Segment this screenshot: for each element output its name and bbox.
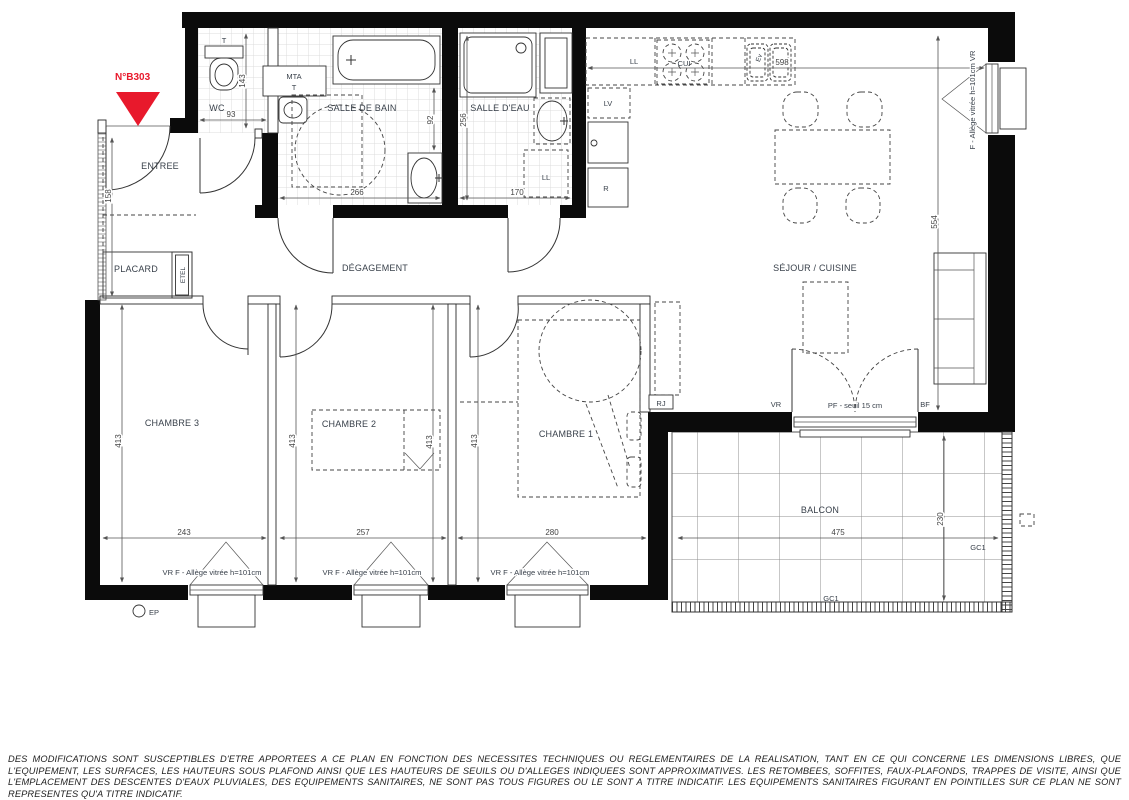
dim-sdb-w: 266 [350,188,364,197]
balcony-railing-bottom [672,602,1012,612]
label-mta-t: T [292,83,297,92]
entry-door [106,126,170,190]
room-label-ch3: CHAMBRE 3 [145,418,199,428]
sofa-icon [934,253,986,384]
turning-circle-ch1 [539,300,641,402]
label-gc1-bottom: GC1 [823,594,838,603]
wc-door [200,138,255,193]
kitchen-base-unit [588,122,628,163]
transfer-zone-lines [586,395,630,488]
french-door-pf [792,349,918,437]
label-washer-sde: LL [542,173,550,182]
dim-entree-h: 158 [104,189,113,203]
closet-outline [103,252,192,298]
label-window-sejour: F - Allège vitrée h=101cm VR [968,50,977,149]
dim-ch2-h-right: 413 [425,435,434,449]
label-washer-kitchen: LL [630,57,638,66]
unit-marker: N°B303 [115,72,160,126]
label-window-ch1: VR F - Allège vitrée h=101cm [491,568,590,577]
room-label-ch1: CHAMBRE 1 [539,429,593,439]
plan-number: N°B303 [115,72,151,83]
tv-unit-icon [655,302,680,395]
party-wall [98,133,106,300]
dim-sde-w: 170 [510,188,524,197]
label-dishwasher: LV [604,99,613,108]
room-label-degagement: DÉGAGEMENT [342,263,408,273]
dim-sdb-h: 92 [426,115,435,124]
chair-bracket-1 [627,412,641,440]
dining-table-icon [775,92,890,223]
label-ep: EP [149,608,159,617]
room-label-sdb: SALLE DE BAIN [327,103,396,113]
bathtub-icon [333,36,440,84]
base-unit-knob [591,140,597,146]
gutter-box [1020,514,1034,526]
ch1-door [470,304,518,357]
room-label-sejour: SÉJOUR / CUISINE [773,263,857,273]
room-label-balcon: BALCON [801,505,839,515]
window-sejour [942,64,1026,133]
window-ch1 [507,542,588,627]
label-window-ch2: VR F - Allège vitrée h=101cm [323,568,422,577]
label-gc1-right: GC1 [970,543,985,552]
balcony-floor [672,432,1002,602]
label-vr-sejour: VR [771,400,782,409]
coffee-table-icon [803,282,848,353]
room-label-ch2: CHAMBRE 2 [322,419,376,429]
entrance-arrow-icon [116,92,160,126]
shower-tray-icon [460,33,536,97]
label-bf: BF [920,400,930,409]
plan-disclaimer: DES MODIFICATIONS SONT SUSCEPTIBLES D'ET… [8,754,1121,800]
label-hob: CUI [678,59,691,68]
label-rj: RJ [656,399,665,408]
window-ch2 [354,542,428,627]
ch3-door [203,300,248,355]
dim-sejour-h: 554 [930,215,939,229]
bathroom-sink-icon [408,153,443,203]
dim-ch1-h: 413 [470,434,479,448]
balcony-railing-right [1002,432,1012,612]
room-label-wc: WC [209,103,225,113]
room-label-sde: SALLE D'EAU [470,103,529,113]
window-ch3 [190,542,263,627]
label-kitchen-sink: Ev [755,53,764,63]
chair-bracket-2 [627,457,641,487]
dim-ch2-w: 257 [356,528,370,537]
kitchen-counter [586,38,795,85]
label-etel: ETEL [180,266,187,283]
bathroom-door [278,218,333,273]
label-pf: PF - seuil 15 cm [828,401,882,410]
shower-room-door [508,218,560,272]
dim-wc-w: 93 [227,110,236,119]
dim-ch3-w: 243 [177,528,191,537]
tiled-floors [198,28,1002,602]
ep-downpipe-icon [133,605,145,617]
label-window-ch3: VR F - Allège vitrée h=101cm [163,568,262,577]
room-label-entree: ENTREE [141,161,179,171]
dim-balcon-w: 475 [831,528,845,537]
label-wc-tank: T [222,36,227,45]
dim-ch1-w: 280 [545,528,559,537]
label-fridge: R [603,184,609,193]
dim-balcon-d: 230 [936,512,945,526]
dim-ch2-h-left: 413 [288,434,297,448]
dim-sde-h: 256 [459,113,468,127]
washbasin-icon [279,97,307,123]
dim-kitchen-w: 598 [775,58,789,67]
dim-ch3-h: 413 [114,434,123,448]
dim-wc-h: 143 [238,74,247,88]
ch2-door [280,304,332,357]
room-label-placard: PLACARD [114,264,158,274]
label-mta: MTA [286,72,301,81]
free-space-zone-ch1 [518,320,640,497]
floor-plan: 143 93 266 92 256 170 158 598 554 413 41… [0,0,1129,754]
